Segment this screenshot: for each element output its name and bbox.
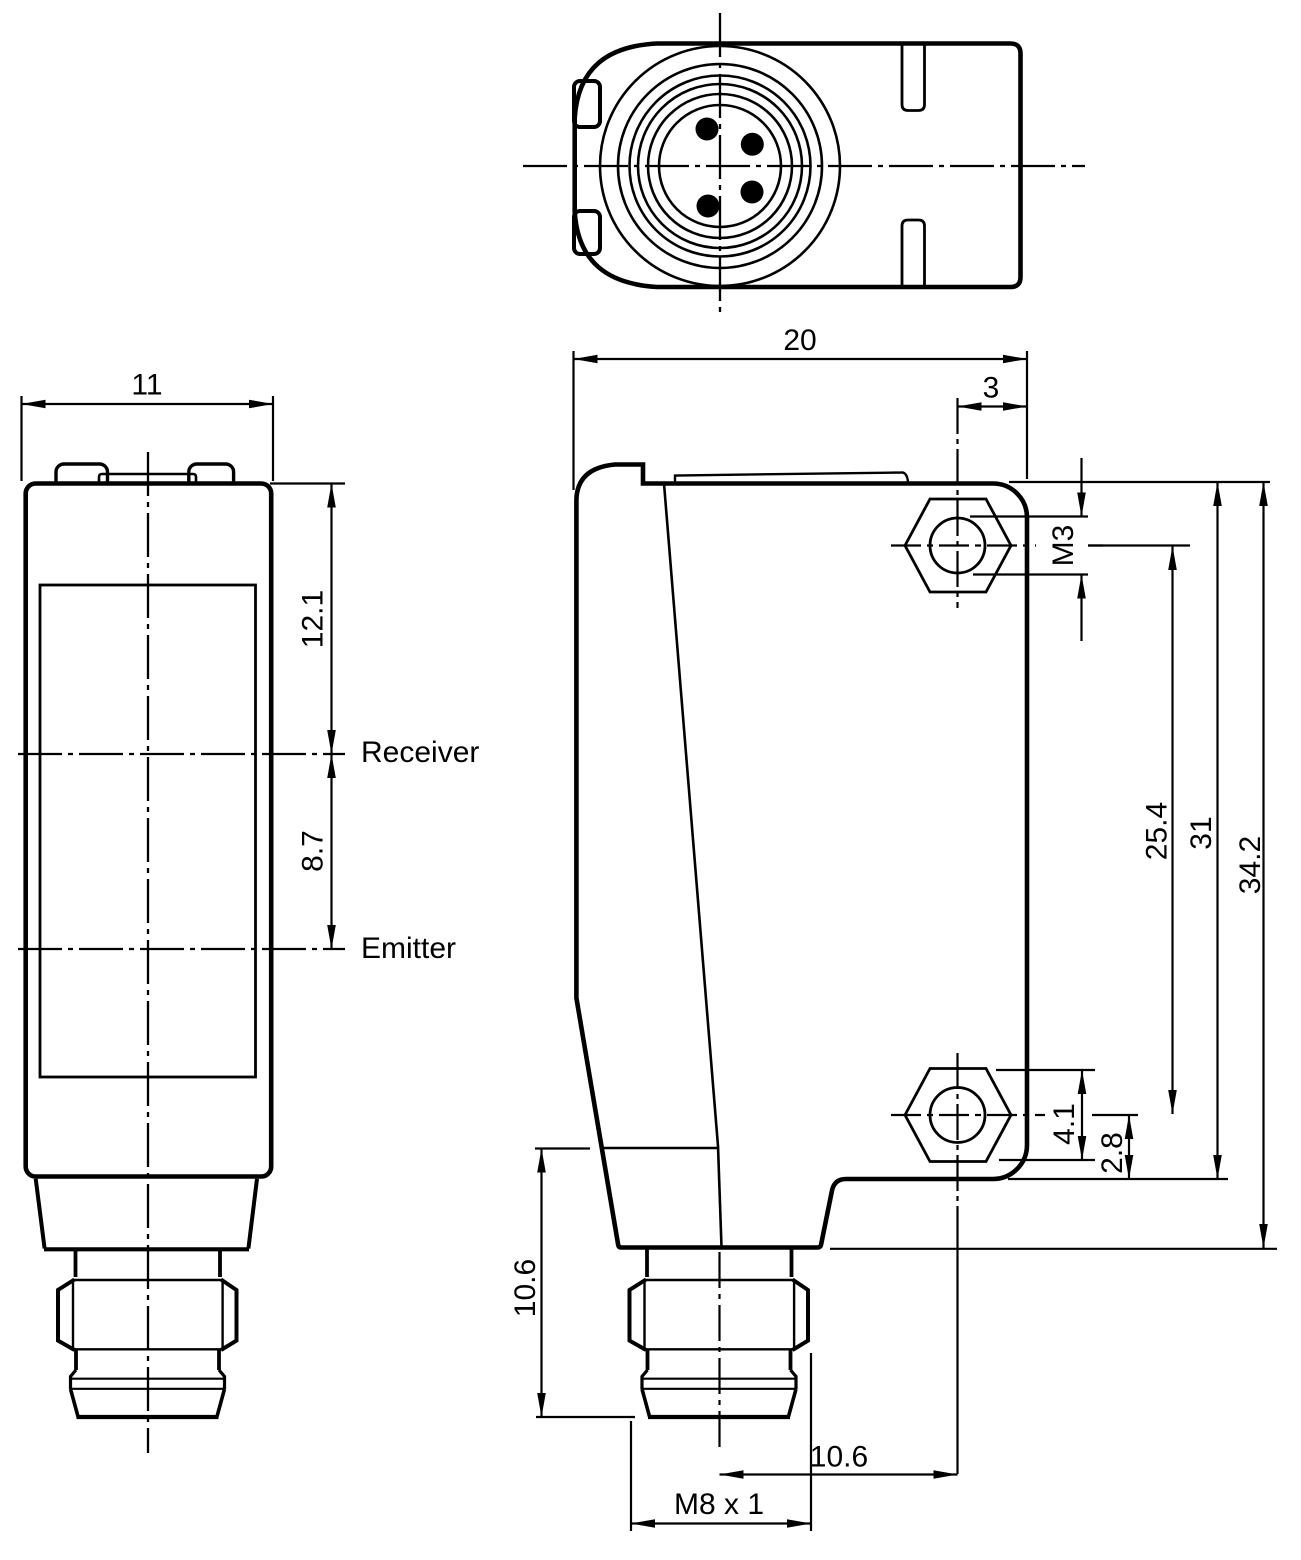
svg-text:25.4: 25.4 [1141, 802, 1174, 860]
svg-text:8.7: 8.7 [297, 830, 330, 872]
svg-text:11: 11 [131, 369, 162, 402]
svg-text:31: 31 [1185, 816, 1218, 849]
svg-text:10.6: 10.6 [509, 1259, 542, 1317]
svg-text:Emitter: Emitter [361, 932, 456, 965]
svg-text:M8 x 1: M8 x 1 [674, 1488, 764, 1521]
svg-text:2.8: 2.8 [1096, 1132, 1129, 1174]
svg-text:34.2: 34.2 [1234, 836, 1267, 894]
svg-text:Receiver: Receiver [361, 736, 479, 769]
svg-text:10.6: 10.6 [810, 1441, 868, 1474]
svg-text:12.1: 12.1 [297, 590, 330, 648]
svg-text:20: 20 [783, 324, 816, 357]
svg-text:M3: M3 [1047, 525, 1080, 567]
svg-text:4.1: 4.1 [1048, 1103, 1081, 1145]
svg-text:3: 3 [983, 372, 1000, 405]
